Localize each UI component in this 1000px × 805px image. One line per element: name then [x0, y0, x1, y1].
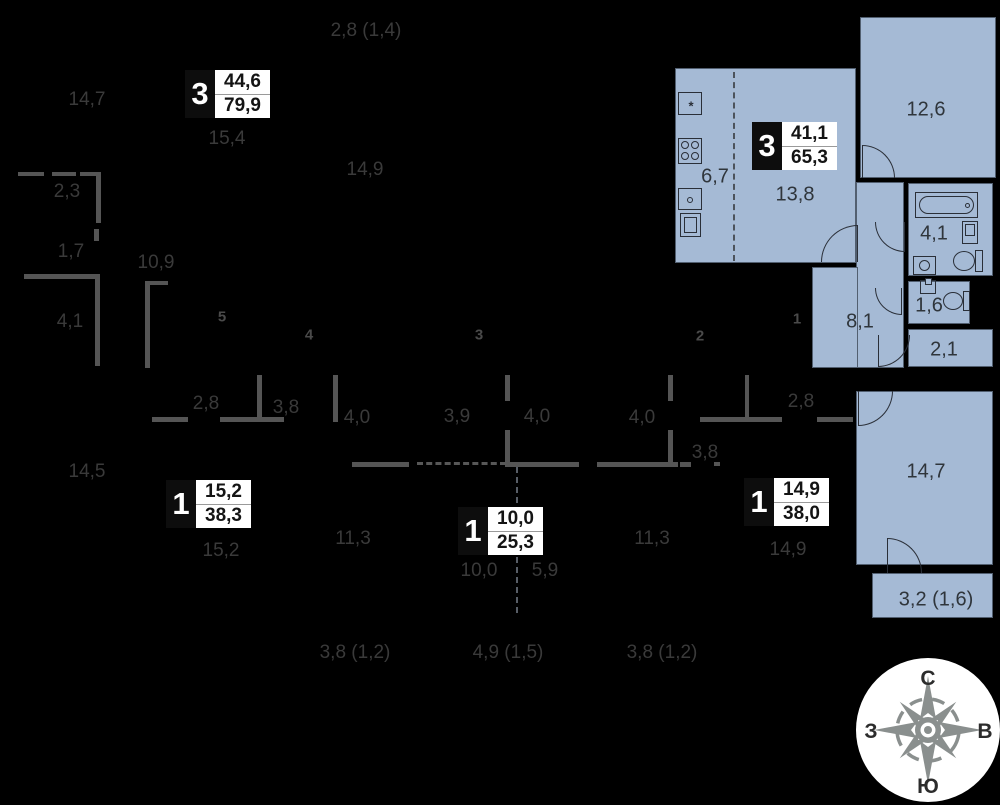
toilet2-icon: [943, 292, 963, 310]
badge-total-area: 79,9: [215, 95, 270, 119]
badge-room-count: 3: [752, 122, 782, 170]
floor-plan: *: [0, 0, 1000, 805]
badge-living-area: 14,9: [774, 478, 829, 503]
dim-label: 4,9 (1,5): [473, 642, 544, 664]
wall-segment: [597, 462, 678, 467]
dim-label: 3,8: [692, 442, 718, 464]
badge-living-area: 41,1: [782, 122, 837, 147]
compass-east-label: В: [977, 720, 992, 743]
badge-room-count: 1: [458, 507, 488, 555]
unit-number-2: 2: [696, 328, 704, 345]
dashed-line-horizontal: [417, 462, 506, 465]
compass-west-label: З: [864, 720, 877, 743]
badge-areas: 10,0 25,3: [488, 507, 543, 555]
boiler-icon: [920, 280, 936, 294]
unit-number-5: 5: [218, 309, 226, 326]
dim-label: 3,8: [273, 397, 299, 419]
wall-segment: [96, 172, 101, 223]
dim-label: 11,3: [335, 528, 371, 550]
washbasin-icon: [962, 221, 978, 244]
fridge-symbol: *: [688, 99, 693, 114]
badge-areas: 44,6 79,9: [215, 70, 270, 118]
badge-total-area: 38,0: [774, 503, 829, 527]
apartment-badge-1room-253[interactable]: 1 10,0 25,3: [458, 507, 543, 555]
dim-label: 2,8: [193, 393, 219, 415]
dim-label: 3,8 (1,2): [627, 642, 698, 664]
badge-total-area: 38,3: [196, 505, 251, 529]
badge-total-area: 65,3: [782, 147, 837, 171]
unit-number-1: 1: [793, 311, 801, 328]
wall-segment: [700, 417, 782, 422]
room-label-147: 14,7: [907, 461, 946, 484]
toilet-tank-icon: [975, 250, 983, 272]
dim-label: 15,4: [209, 128, 246, 150]
badge-areas: 14,9 38,0: [774, 478, 829, 526]
badge-areas: 15,2 38,3: [196, 480, 251, 528]
wall-segment: [24, 274, 99, 279]
dim-label: 4,0: [524, 406, 550, 428]
wall-segment: [257, 375, 262, 422]
dim-label: 3,9: [444, 406, 470, 428]
apartment-badge-3room-653[interactable]: 3 41,1 65,3: [752, 122, 837, 170]
dim-label: 2,8: [788, 391, 814, 413]
dim-label: 2,3: [54, 181, 80, 203]
wall-segment: [508, 462, 579, 467]
kitchen-cabinet-icon: [678, 188, 702, 210]
kitchen-zone-divider: [733, 72, 735, 261]
wall-segment: [94, 229, 99, 241]
apartment-badge-3room-799[interactable]: 3 44,6 79,9: [185, 70, 270, 118]
badge-living-area: 15,2: [196, 480, 251, 505]
door-arc-storage: [878, 335, 910, 367]
wall-segment: [817, 417, 853, 422]
dim-label: 4,1: [57, 311, 83, 333]
badge-total-area: 25,3: [488, 532, 543, 556]
wall-segment: [333, 375, 338, 422]
wall-segment: [745, 375, 749, 422]
bathtub-icon: [915, 192, 978, 218]
wall-segment: [152, 417, 188, 422]
dim-label: 10,0: [461, 560, 498, 582]
apartment-badge-1room-383[interactable]: 1 15,2 38,3: [166, 480, 251, 528]
fridge-icon: *: [678, 92, 702, 115]
badge-living-area: 44,6: [215, 70, 270, 95]
wall-segment: [680, 462, 691, 467]
dim-label: 4,0: [629, 407, 655, 429]
washing-machine-icon: [913, 256, 936, 275]
badge-room-count: 3: [185, 70, 215, 118]
wall-segment: [352, 462, 409, 467]
toilet2-tank-icon: [963, 291, 970, 311]
wall-segment: [668, 430, 673, 467]
badge-room-count: 1: [744, 478, 774, 526]
wall-segment: [145, 281, 150, 368]
compass-rose: С Ю З В: [855, 657, 1000, 805]
dim-label: 14,7: [69, 89, 106, 111]
wall-segment: [52, 172, 76, 176]
stove-icon: [678, 138, 702, 164]
room-label-126: 12,6: [907, 99, 946, 122]
compass-south-label: Ю: [917, 775, 939, 798]
room-label-storage: 2,1: [930, 339, 958, 362]
room-label-balcony: 3,2 (1,6): [899, 589, 973, 612]
wall-segment: [668, 375, 673, 401]
dim-label: 10,9: [138, 252, 175, 274]
room-label-wc: 1,6: [915, 295, 943, 318]
wall-segment: [18, 172, 44, 176]
room-label-bath: 4,1: [920, 223, 948, 246]
room-label-kitchen: 6,7: [701, 166, 729, 189]
dim-label: 14,9: [347, 159, 384, 181]
dim-label: 2,8 (1,4): [331, 20, 402, 42]
unit-number-3: 3: [475, 327, 483, 344]
dim-label: 4,0: [344, 407, 370, 429]
dim-label: 3,8 (1,2): [320, 642, 391, 664]
dim-label: 1,7: [58, 241, 84, 263]
toilet-icon: [953, 251, 975, 271]
kitchen-sink-icon: [680, 213, 701, 237]
badge-areas: 41,1 65,3: [782, 122, 837, 170]
dim-label: 15,2: [203, 540, 240, 562]
wall-segment: [505, 375, 510, 401]
compass-north-label: С: [920, 667, 935, 690]
dim-label: 14,5: [69, 461, 106, 483]
dim-label: 11,3: [634, 528, 670, 550]
badge-room-count: 1: [166, 480, 196, 528]
unit-number-4: 4: [305, 327, 313, 344]
apartment-badge-1room-380[interactable]: 1 14,9 38,0: [744, 478, 829, 526]
wall-segment: [95, 274, 100, 366]
badge-living-area: 10,0: [488, 507, 543, 532]
dim-label: 14,9: [770, 539, 807, 561]
room-label-living: 13,8: [776, 184, 815, 207]
dim-label: 5,9: [532, 560, 558, 582]
room-label-hall: 8,1: [846, 311, 874, 334]
